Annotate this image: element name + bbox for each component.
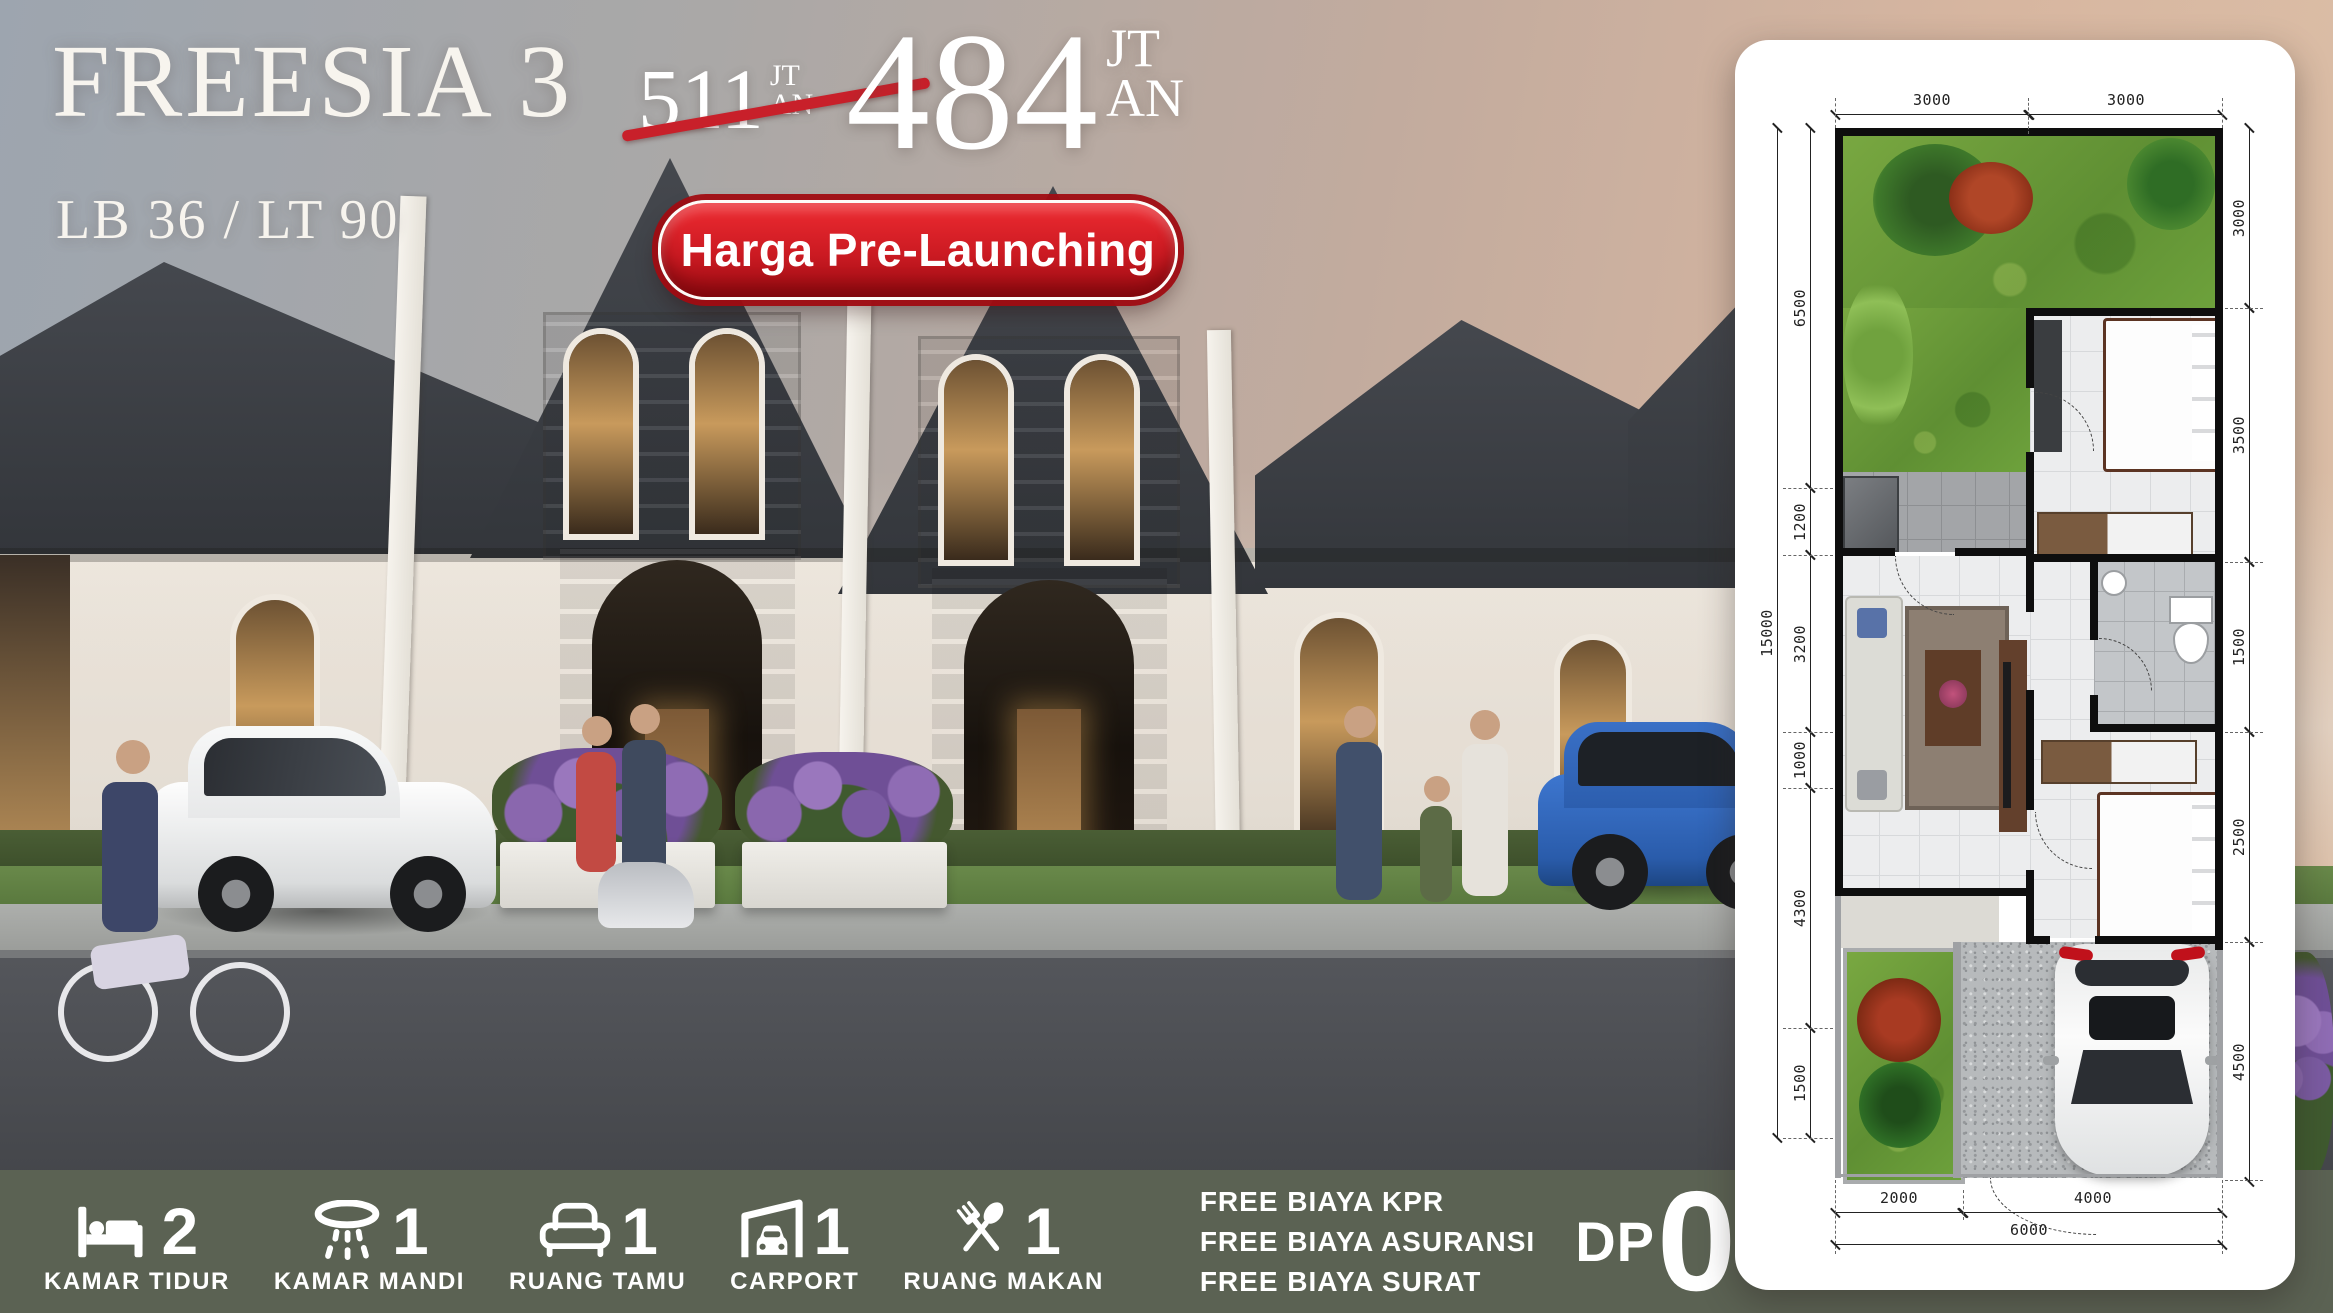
feature-label: RUANG MAKAN xyxy=(903,1268,1103,1296)
wall xyxy=(2026,554,2223,562)
page-title: FREESIA 3 xyxy=(52,22,573,141)
dim-left-1500: 1500 xyxy=(1810,1028,1811,1138)
wall xyxy=(2026,308,2223,316)
person-head xyxy=(582,716,612,746)
arch-window xyxy=(944,360,1008,560)
ext-line xyxy=(2225,732,2263,733)
feature-ruang-makan: 1 RUANG MAKAN xyxy=(903,1188,1103,1296)
ext-line xyxy=(1835,1180,1836,1254)
ext-line xyxy=(2222,98,2223,128)
free-item-surat: FREE BIAYA SURAT xyxy=(1200,1266,1535,1298)
pillows xyxy=(2192,325,2216,461)
dim-label: 1200 xyxy=(1791,502,1809,540)
ext-line xyxy=(1783,1028,1833,1029)
boundary-strip xyxy=(1835,896,1841,1178)
carport-icon xyxy=(739,1198,805,1260)
wall xyxy=(2026,936,2050,944)
dim-label: 3000 xyxy=(1913,91,1951,109)
new-price-value: 484 xyxy=(846,8,1098,176)
sofa xyxy=(1845,596,1903,812)
fern-plant xyxy=(1859,1062,1941,1148)
dim-label: 15000 xyxy=(1758,609,1776,657)
dim-label: 1000 xyxy=(1791,741,1809,779)
boundary-strip xyxy=(2217,950,2223,1178)
wall xyxy=(2215,128,2223,950)
dp-prefix: DP xyxy=(1575,1209,1655,1274)
ext-line xyxy=(1963,1190,1964,1220)
car-windows xyxy=(204,738,386,796)
wall xyxy=(1835,548,1895,556)
dim-label: 4000 xyxy=(2074,1189,2112,1207)
dim-label: 6000 xyxy=(2010,1221,2048,1239)
dim-label: 2000 xyxy=(1880,1189,1918,1207)
wash-basin xyxy=(2101,570,2127,596)
car-windows xyxy=(1578,732,1740,786)
dim-label: 1500 xyxy=(2230,628,2248,666)
car-wheel xyxy=(390,856,466,932)
dim-bottom-total: 6000 xyxy=(1835,1244,2223,1245)
dim-label: 3200 xyxy=(1791,624,1809,662)
windshield xyxy=(2071,1050,2193,1104)
wall xyxy=(1835,128,2223,136)
person-head xyxy=(630,704,660,734)
feature-ruang-tamu: 1 RUANG TAMU xyxy=(509,1188,686,1296)
stone-facade-1 xyxy=(543,312,801,560)
wall xyxy=(2090,724,2223,732)
subtitle-lb-lt: LB 36 / LT 90 xyxy=(56,188,399,252)
carport-car xyxy=(2055,944,2209,1176)
tv-cabinet xyxy=(1999,640,2027,832)
dim-label: 4300 xyxy=(1791,889,1809,927)
ext-line xyxy=(1783,788,1833,789)
dim-right-3000: 3000 xyxy=(2249,128,2250,308)
cutlery-icon xyxy=(946,1198,1016,1260)
blue-cushion xyxy=(1857,608,1887,638)
feature-label: KAMAR TIDUR xyxy=(44,1268,230,1296)
toilet-tank xyxy=(2169,596,2213,624)
feature-count: 1 xyxy=(392,1203,429,1259)
floorplan-card: 3000 3000 6500 1200 3200 1000 4300 1500 … xyxy=(1735,40,2295,1290)
white-car xyxy=(146,726,496,940)
dresser-1 xyxy=(2037,512,2193,556)
prelaunch-badge: Harga Pre-Launching xyxy=(658,200,1178,300)
table-plant xyxy=(1939,680,1967,708)
dim-right-2500: 2500 xyxy=(2249,732,2250,942)
ext-line xyxy=(2225,942,2263,943)
red-bush xyxy=(1949,162,2033,234)
ext-line xyxy=(2028,98,2029,134)
feature-count: 1 xyxy=(813,1203,850,1259)
ext-line xyxy=(1835,98,1836,128)
dim-bottom-2000: 2000 xyxy=(1835,1212,1963,1213)
free-benefits-list: FREE BIAYA KPR FREE BIAYA ASURANSI FREE … xyxy=(1200,1186,1535,1298)
dim-left-6500: 6500 xyxy=(1810,128,1811,488)
dim-label: 3000 xyxy=(2230,199,2248,237)
person-body xyxy=(576,752,616,872)
free-item-asuransi: FREE BIAYA ASURANSI xyxy=(1200,1226,1535,1258)
dim-top-1: 3000 xyxy=(1835,114,2029,115)
ext-line xyxy=(2222,1180,2223,1254)
coffee-table xyxy=(1925,650,1981,746)
child-head xyxy=(1424,776,1450,802)
new-price-unit-jt: JT xyxy=(1106,24,1184,74)
garden-tree xyxy=(2127,138,2215,230)
dim-right-4500: 4500 xyxy=(2249,942,2250,1182)
new-price: 484 JT AN xyxy=(846,8,1184,176)
vine-strip xyxy=(1843,280,1913,430)
wall xyxy=(2026,452,2034,612)
rug xyxy=(1905,606,2009,810)
dp-value: 0 xyxy=(1657,1185,1736,1299)
porch xyxy=(1839,896,1999,948)
feature-kamar-tidur: 2 KAMAR TIDUR xyxy=(44,1188,230,1296)
dim-left-total: 15000 xyxy=(1777,128,1778,1138)
dim-left-1000: 1000 xyxy=(1810,732,1811,788)
arch-window xyxy=(1070,360,1134,560)
child-body xyxy=(1420,806,1452,902)
dim-label: 3500 xyxy=(2230,416,2248,454)
person-body xyxy=(1336,742,1382,900)
dim-top-2: 3000 xyxy=(2029,114,2223,115)
feature-label: KAMAR MANDI xyxy=(274,1268,465,1296)
dim-label: 2500 xyxy=(2230,818,2248,856)
shower-icon xyxy=(310,1200,384,1260)
dim-label: 4500 xyxy=(2230,1043,2248,1081)
wall xyxy=(2090,562,2098,640)
car-wheel xyxy=(198,856,274,932)
feature-carport: 1 CARPORT xyxy=(730,1188,859,1296)
dim-right-1500: 1500 xyxy=(2249,562,2250,732)
feature-count: 2 xyxy=(162,1203,199,1259)
feature-label: RUANG TAMU xyxy=(509,1268,686,1296)
wall xyxy=(1835,888,2030,896)
dresser-2 xyxy=(2041,740,2197,784)
red-plant xyxy=(1857,978,1941,1062)
new-price-units: JT AN xyxy=(1106,24,1184,176)
husky-dog xyxy=(598,862,694,928)
stone-facade-2 xyxy=(918,336,1180,588)
dim-bottom-4000: 4000 xyxy=(1963,1212,2223,1213)
car-wheel xyxy=(1572,834,1648,910)
wall xyxy=(2026,308,2034,388)
side-mirror xyxy=(2043,1056,2059,1065)
new-price-unit-an: AN xyxy=(1106,74,1184,124)
ext-line xyxy=(1783,488,1833,489)
old-price-unit-jt: JT xyxy=(770,62,813,91)
arch-window xyxy=(569,334,633,534)
bike-wheel xyxy=(190,962,290,1062)
person-head xyxy=(1470,710,1500,740)
ext-line xyxy=(2225,1180,2263,1181)
ext-line xyxy=(2225,308,2263,309)
rear-window xyxy=(2075,960,2189,986)
dim-left-4300: 4300 xyxy=(1810,788,1811,1028)
dim-label: 6500 xyxy=(1791,289,1809,327)
dim-label: 1500 xyxy=(1791,1064,1809,1102)
dim-left-1200: 1200 xyxy=(1810,488,1811,555)
person-head xyxy=(1344,706,1376,738)
pillows xyxy=(2192,803,2216,933)
wall xyxy=(2095,936,2223,944)
ext-line xyxy=(2225,562,2263,563)
bed-1 xyxy=(2103,318,2221,472)
person-body xyxy=(102,782,158,932)
sunroof xyxy=(2089,996,2175,1040)
bed-icon xyxy=(76,1204,154,1260)
person-head xyxy=(116,740,150,774)
ext-line xyxy=(1783,555,1833,556)
feature-kamar-mandi: 1 KAMAR MANDI xyxy=(274,1188,465,1296)
free-item-kpr: FREE BIAYA KPR xyxy=(1200,1186,1535,1218)
bed-2 xyxy=(2097,792,2221,940)
feature-count: 1 xyxy=(621,1203,658,1259)
wall xyxy=(2026,870,2034,944)
dim-label: 3000 xyxy=(2107,91,2145,109)
gray-cushion xyxy=(1857,770,1887,800)
front-edge-line xyxy=(1835,1174,2223,1177)
arch-window xyxy=(695,334,759,534)
feature-count: 1 xyxy=(1024,1203,1061,1259)
poster-root: FREESIA 3 LB 36 / LT 90 511 JT AN 484 JT… xyxy=(0,0,2333,1313)
wall xyxy=(2026,690,2034,810)
feature-label: CARPORT xyxy=(730,1268,859,1296)
person-body xyxy=(1462,744,1508,896)
planter-box xyxy=(742,842,947,908)
wall xyxy=(1955,548,2030,556)
water-feature xyxy=(1843,476,1899,552)
carport-divider xyxy=(1953,942,1961,1178)
ext-line xyxy=(1783,1138,1833,1139)
eave-shadow xyxy=(0,548,1770,562)
wall xyxy=(1835,128,1843,896)
tv xyxy=(2003,662,2011,808)
dim-left-3200: 3200 xyxy=(1810,555,1811,732)
dim-right-3500: 3500 xyxy=(2249,308,2250,562)
sofa-icon xyxy=(537,1200,613,1260)
ext-line xyxy=(1783,732,1833,733)
